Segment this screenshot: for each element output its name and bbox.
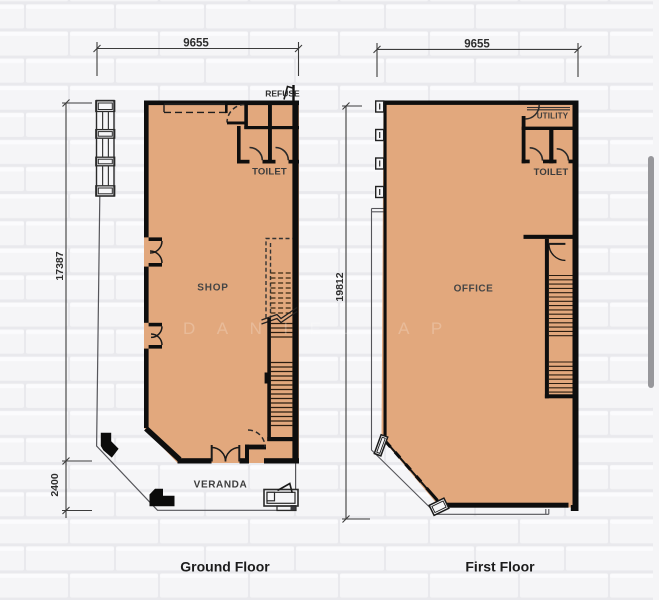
svg-text:OFFICE: OFFICE bbox=[454, 284, 494, 295]
svg-text:SHOP: SHOP bbox=[197, 283, 229, 294]
svg-text:VERANDA: VERANDA bbox=[194, 480, 248, 491]
svg-text:9655: 9655 bbox=[464, 39, 490, 51]
svg-text:Ground Floor: Ground Floor bbox=[180, 559, 270, 575]
svg-text:DANIEL AP: DANIEL AP bbox=[183, 319, 464, 338]
svg-text:9655: 9655 bbox=[183, 38, 209, 50]
svg-text:17387: 17387 bbox=[54, 251, 66, 280]
svg-text:REFUSE: REFUSE bbox=[265, 89, 300, 99]
svg-text:UTILITY: UTILITY bbox=[537, 112, 569, 121]
svg-text:2400: 2400 bbox=[49, 473, 61, 497]
svg-text:19812: 19812 bbox=[334, 272, 346, 301]
svg-text:First Floor: First Floor bbox=[465, 559, 535, 575]
svg-text:TOILET: TOILET bbox=[252, 167, 287, 178]
svg-text:TOILET: TOILET bbox=[534, 167, 569, 178]
